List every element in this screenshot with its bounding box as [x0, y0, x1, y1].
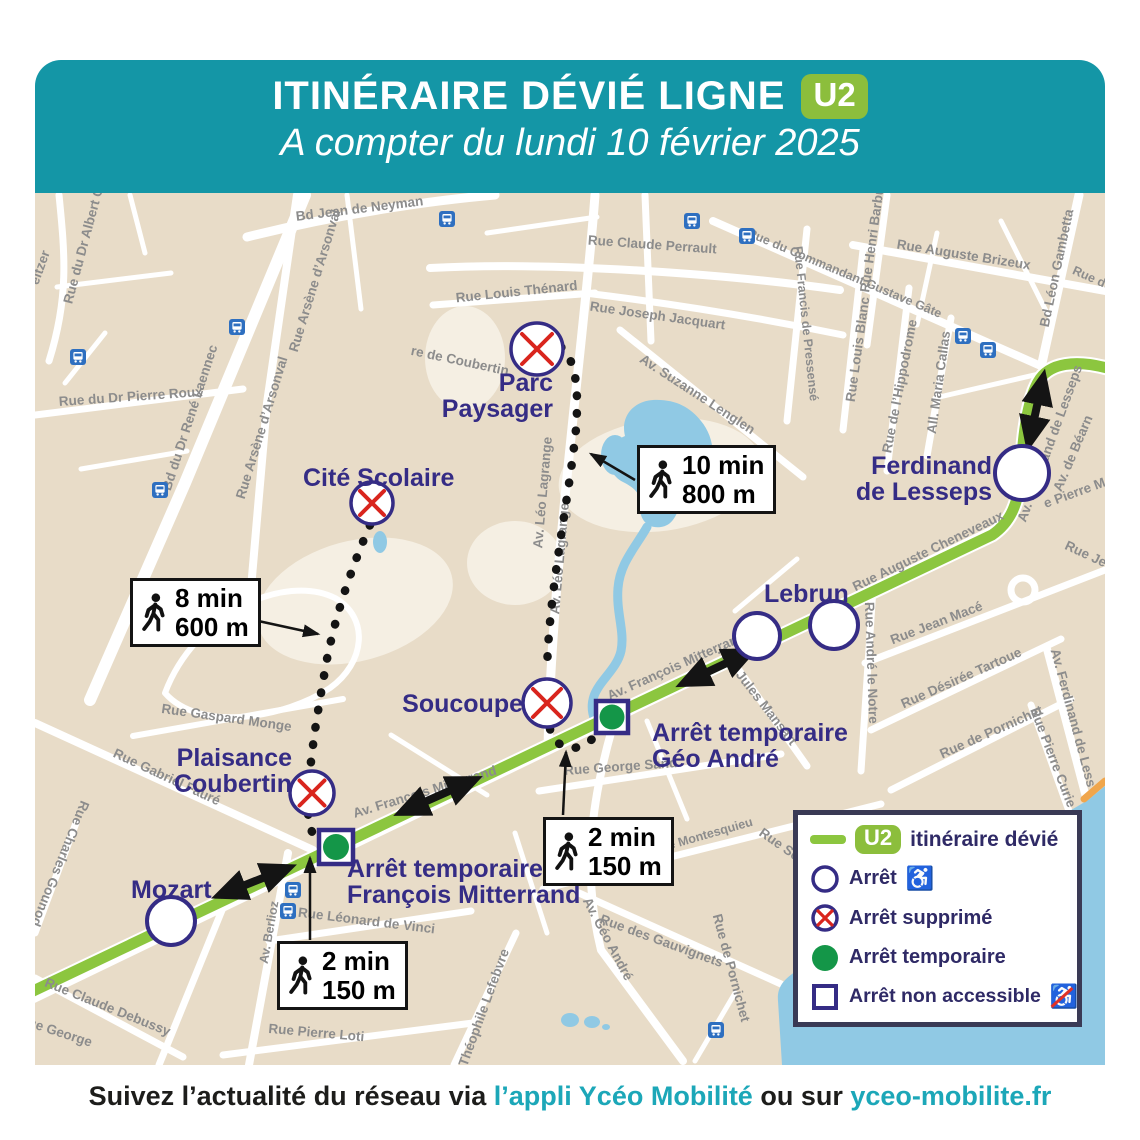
street-label: Rue Désirée Tartoue [899, 644, 1025, 711]
street-label: e Pierre M [1042, 475, 1105, 511]
removed-stop-plaisance-coubertin-icon [290, 771, 334, 815]
stop-lebrun-icon [810, 601, 858, 649]
stop-lebrun-icon [734, 613, 780, 659]
street-label: Rue George [35, 1012, 95, 1050]
street-label: Av. Léo Lagrange [530, 436, 555, 549]
stop-mozart-icon [147, 897, 195, 945]
stop-label-cite-scolaire: Cité Scolaire [303, 465, 454, 491]
wheelchair-crossed-icon: ♿ [1050, 985, 1079, 1008]
site-link[interactable]: yceo-mobilite.fr [850, 1081, 1051, 1111]
street-label: All. Maria Callas [924, 330, 953, 435]
effective-date-subtitle: A compter du lundi 10 février 2025 [35, 122, 1105, 165]
app-link[interactable]: l’appli Ycéo Mobilité [494, 1081, 753, 1111]
stop-label-temp-geo-andre: Arrêt temporaireGéo André [652, 720, 848, 773]
non-accessible-square-icon [810, 982, 840, 1012]
line-u2-badge: U2 [801, 74, 867, 119]
street-label: Bd Jean de Neyman [295, 193, 424, 224]
bus-stop-icon [955, 328, 971, 344]
bus-stop-icon [739, 228, 755, 244]
stop-label-lebrun: Lebrun [764, 581, 849, 607]
legend-row-removed: Arrêt supprimé [810, 903, 1065, 933]
stop-label-soucoupe: Soucoupe [402, 691, 523, 717]
street-label: eitzer [35, 248, 53, 287]
legend-u2-badge: U2 [855, 825, 901, 854]
street-label: Rue Claude Perrault [587, 233, 717, 257]
removed-stop-soucoupe-icon [523, 679, 571, 727]
walking-person-icon [645, 459, 677, 501]
walk-callout-2min-geo-andre: 2 min150 m [543, 817, 674, 886]
stop-label-ferdinand-de-lesseps: Ferdinandde Lesseps [856, 453, 992, 506]
temporary-stop-geo-andre-icon [596, 701, 628, 733]
bus-stop-icon [684, 213, 700, 229]
legend-route-label: itinéraire dévié [910, 828, 1058, 852]
legend-row-temporary: Arrêt temporaire [810, 943, 1065, 973]
street-label: Rue Je [1063, 538, 1105, 571]
stop-icon [810, 864, 840, 894]
stop-label-parc-paysager: ParcPaysager [442, 370, 553, 423]
walking-person-icon [138, 592, 170, 634]
header-title-row: ITINÉRAIRE DÉVIÉ LIGNE U2 [35, 74, 1105, 119]
footer-prefix: Suivez l’actualité du réseau via [89, 1081, 494, 1111]
bus-stop-icon [152, 482, 168, 498]
street-label: Rue Auguste Cheneveaux [850, 508, 1006, 594]
bus-stop-icon [280, 903, 296, 919]
walk-callout-10min: 10 min800 m [637, 445, 776, 514]
legend-removed-label: Arrêt supprimé [849, 907, 992, 930]
removed-stop-parc-paysager-icon [511, 323, 563, 375]
street-label: Rue Louis Blanc [843, 295, 873, 402]
bus-stop-icon [980, 342, 996, 358]
map: Bd Jean de Neyman Rue Claude Perrault Ru… [35, 193, 1105, 1065]
street-label: Théophile Lefebvre [456, 946, 513, 1065]
walk-callout-2min-mitterrand: 2 min150 m [277, 941, 408, 1010]
street-label: Rue du Dr Albert Cal [60, 193, 109, 305]
stop-label-mozart: Mozart [131, 877, 212, 903]
wheelchair-icon: ♿ [906, 867, 935, 890]
legend-temporary-label: Arrêt temporaire [849, 946, 1006, 969]
walking-person-icon [551, 831, 583, 873]
legend-row-stop: Arrêt ♿ [810, 864, 1065, 894]
walking-person-icon [285, 955, 317, 997]
bus-stop-icon [70, 349, 86, 365]
header-banner: ITINÉRAIRE DÉVIÉ LIGNE U2 A compter du l… [35, 60, 1105, 193]
legend-row-route: U2 itinéraire dévié [810, 825, 1065, 854]
legend-not-accessible-label: Arrêt non accessible [849, 985, 1041, 1008]
temporary-stop-icon [810, 943, 840, 973]
stop-ferdinand-de-lesseps-icon [995, 446, 1049, 500]
page-title: ITINÉRAIRE DÉVIÉ LIGNE [272, 74, 785, 119]
footer-note: Suivez l’actualité du réseau via l’appli… [0, 1081, 1140, 1112]
route-line-icon [810, 835, 846, 844]
legend: U2 itinéraire dévié Arrêt ♿ Arrêt suppri… [793, 810, 1082, 1027]
walk-callout-8min: 8 min600 m [130, 578, 261, 647]
stop-label-plaisance-coubertin: PlaisanceCoubertin [174, 745, 292, 798]
bus-stop-icon [708, 1022, 724, 1038]
removed-stop-icon [810, 903, 840, 933]
bus-stop-icon [285, 882, 301, 898]
bus-stop-icon [439, 211, 455, 227]
street-label: Rue Charles Gounod [35, 799, 92, 929]
legend-row-not-accessible: Arrêt non accessible ♿ [810, 982, 1065, 1012]
footer-middle: ou sur [753, 1081, 851, 1111]
bus-stop-icon [229, 319, 245, 335]
legend-stop-label: Arrêt [849, 867, 897, 890]
